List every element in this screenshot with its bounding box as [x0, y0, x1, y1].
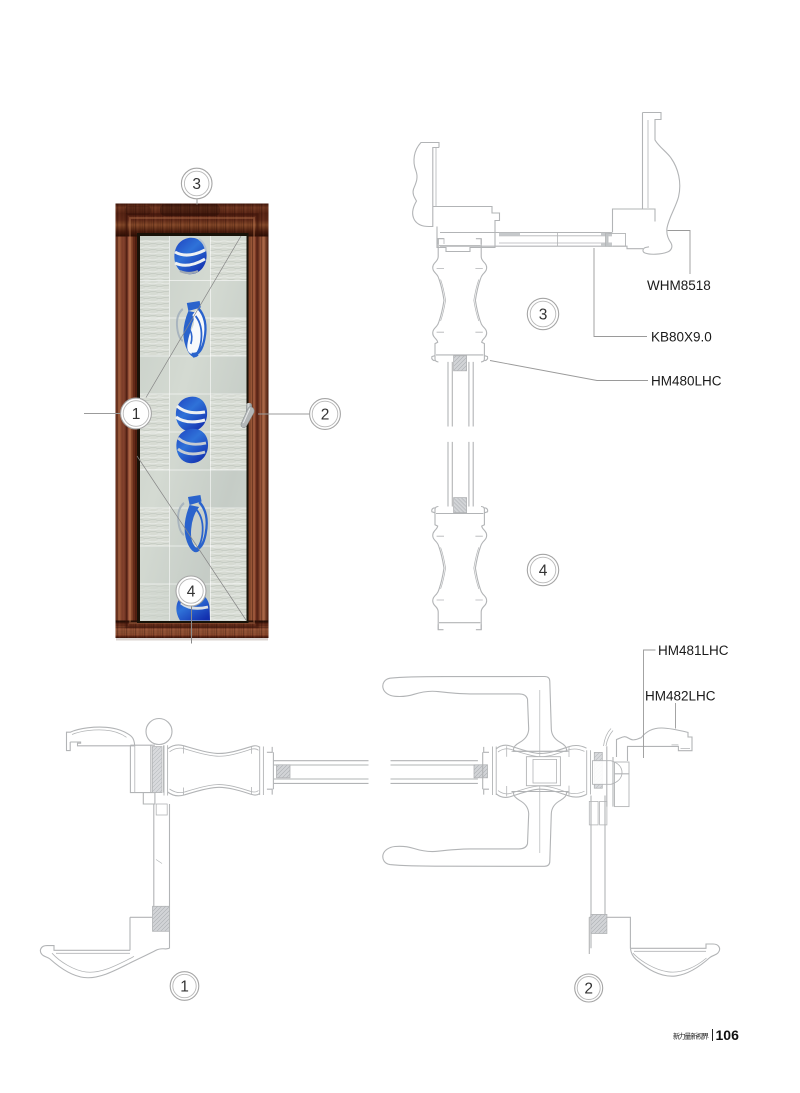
svg-text:106: 106 — [716, 1027, 740, 1043]
svg-text:3: 3 — [192, 176, 201, 193]
svg-text:1: 1 — [132, 406, 141, 423]
svg-text:2: 2 — [584, 981, 593, 998]
svg-text:新力量.新视界: 新力量.新视界 — [673, 1032, 709, 1041]
svg-text:HM481LHC: HM481LHC — [658, 643, 729, 658]
svg-text:4: 4 — [187, 584, 196, 601]
svg-text:3: 3 — [539, 307, 548, 324]
svg-text:2: 2 — [321, 407, 330, 424]
svg-text:HM480LHC: HM480LHC — [651, 374, 722, 389]
svg-text:KB80X9.0: KB80X9.0 — [651, 330, 712, 345]
svg-text:HM482LHC: HM482LHC — [645, 689, 716, 704]
svg-text:WHM8518: WHM8518 — [647, 278, 711, 293]
svg-text:4: 4 — [539, 563, 548, 580]
svg-text:1: 1 — [180, 979, 189, 996]
